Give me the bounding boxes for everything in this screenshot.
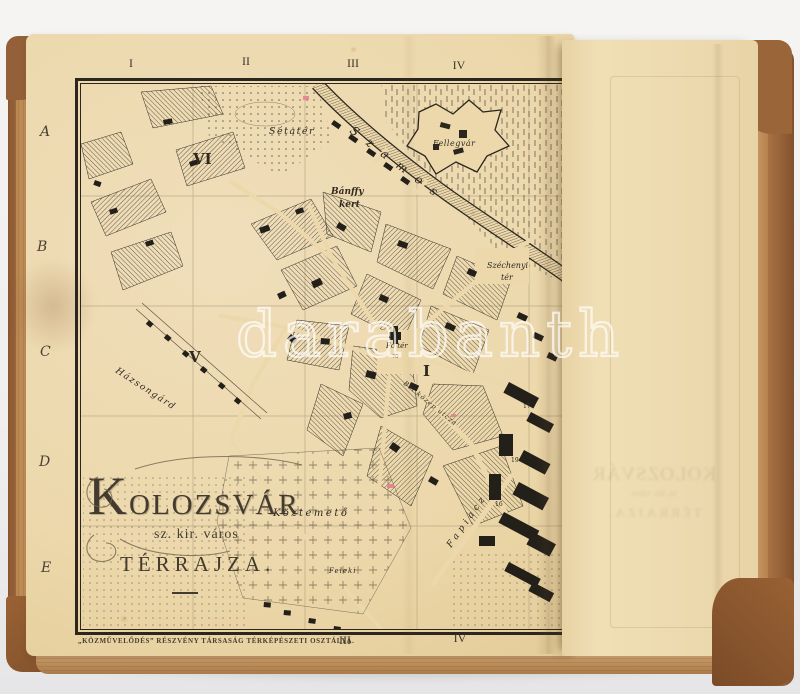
book-photo: I II III IV III IV A B C D E „KÖZMŰVELŐD… (0, 0, 800, 694)
fold-crease (712, 44, 724, 652)
label-szechenyi-ter: tér (501, 273, 514, 282)
publisher-imprint: „KÖZMŰVELŐDÉS” RÉSZVÉNY TÁRSASÁG TÉRKÉPÉ… (78, 637, 354, 645)
grid-col-label-bottom-4: IV (449, 631, 471, 646)
grid-row-label-d: D (39, 454, 50, 470)
grid-col-label-3: III (342, 56, 364, 71)
blank-overlay-page: KOLOZSVÁR sz. kir. város TÉRRAJZA. (562, 40, 758, 656)
grid-row-label-e: E (41, 560, 51, 576)
label-building-19: 19 (511, 457, 519, 464)
leather-corner-bottom-right (712, 578, 794, 686)
label-district-v: V (188, 348, 201, 366)
cartouche-flourish (80, 439, 310, 589)
label-fellegvar: Fellegvár (432, 139, 476, 148)
foxing-spot (350, 46, 357, 53)
label-szechenyi: Széchenyi (487, 261, 528, 270)
label-building-17: 17 (523, 403, 531, 410)
label-hazsongard: Házsongárd (113, 365, 179, 413)
label-building-16: 16 (495, 501, 503, 508)
label-feleki: Feleki (328, 567, 356, 575)
grid-col-label-2: II (235, 54, 257, 69)
grid-col-label-1: I (120, 56, 142, 71)
label-district-vi: VI (192, 150, 212, 168)
grid-row-label-c: C (40, 344, 51, 360)
label-setater: Sétatér (269, 126, 315, 137)
foxing-spot (120, 615, 128, 623)
label-banffy: Bánffy (330, 186, 364, 197)
foxing-spot (470, 210, 476, 216)
label-fo-ter-number: 70 (392, 354, 398, 360)
grid-row-label-b: B (37, 239, 47, 255)
label-fo-ter: Fő tér (385, 341, 408, 350)
map-frame: Sétatér VI Bánffy kert Fellegvár Szamos … (75, 78, 572, 635)
cartouche-rule (172, 592, 198, 594)
grid-col-label-4: IV (448, 58, 470, 73)
label-district-i: I (423, 362, 430, 380)
map-title-cartouche: KOLOZSVÁR sz. kir. város TÉRRAJZA. (86, 465, 304, 620)
grid-row-label-a: A (40, 124, 50, 140)
label-banffy-kert: kert (339, 200, 361, 210)
